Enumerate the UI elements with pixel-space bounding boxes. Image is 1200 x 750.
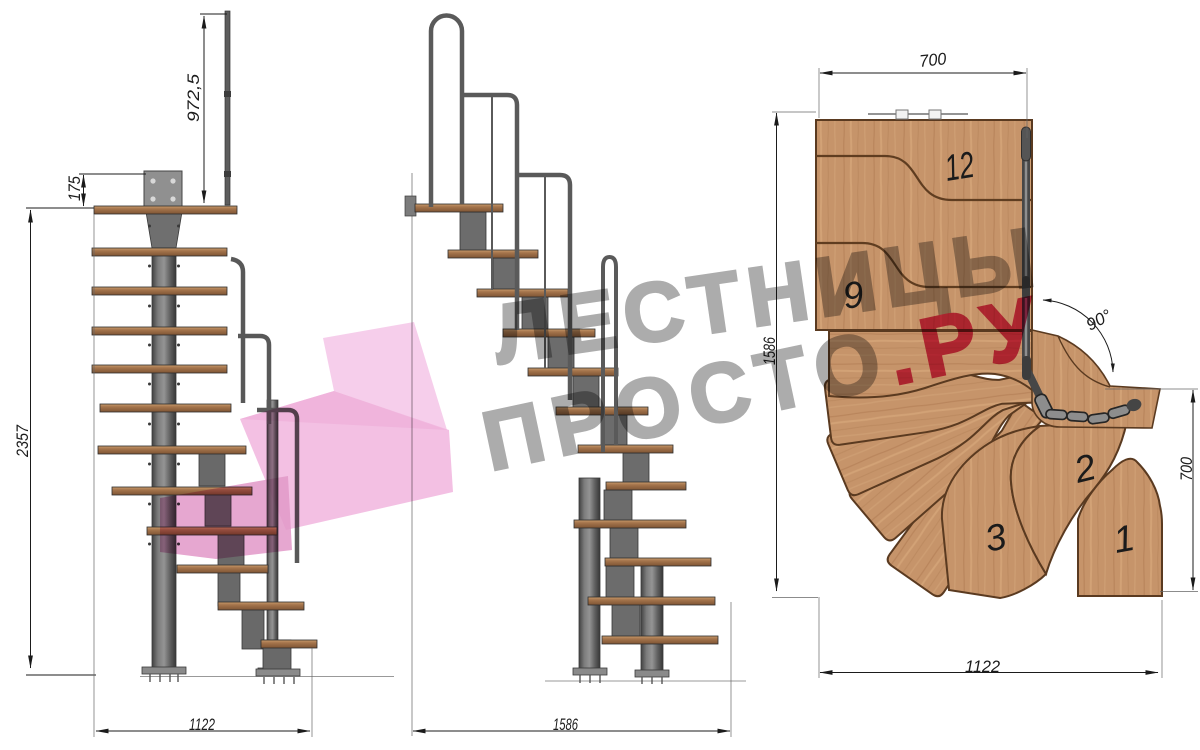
svg-text:175: 175 <box>65 176 84 201</box>
svg-text:700: 700 <box>1177 457 1196 481</box>
svg-text:1586: 1586 <box>553 715 578 734</box>
svg-text:972,5: 972,5 <box>184 73 203 122</box>
svg-text:90°: 90° <box>1083 306 1115 335</box>
svg-text:1122: 1122 <box>189 715 215 734</box>
svg-text:700: 700 <box>918 49 947 71</box>
svg-text:1122: 1122 <box>965 657 1001 676</box>
svg-text:2357: 2357 <box>13 425 32 458</box>
